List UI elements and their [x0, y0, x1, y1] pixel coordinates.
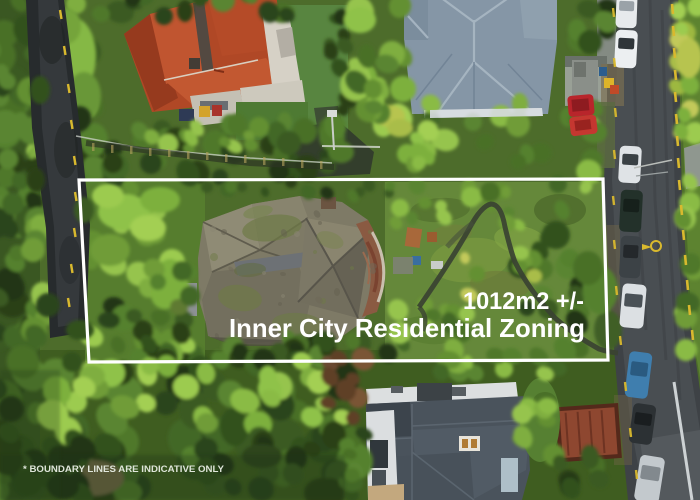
svg-text:1012m2 +/-: 1012m2 +/- — [463, 288, 584, 315]
svg-text:* BOUNDARY LINES ARE INDICATIV: * BOUNDARY LINES ARE INDICATIVE ONLY — [23, 464, 224, 474]
svg-text:Inner City Residential Zoning: Inner City Residential Zoning — [229, 313, 585, 343]
